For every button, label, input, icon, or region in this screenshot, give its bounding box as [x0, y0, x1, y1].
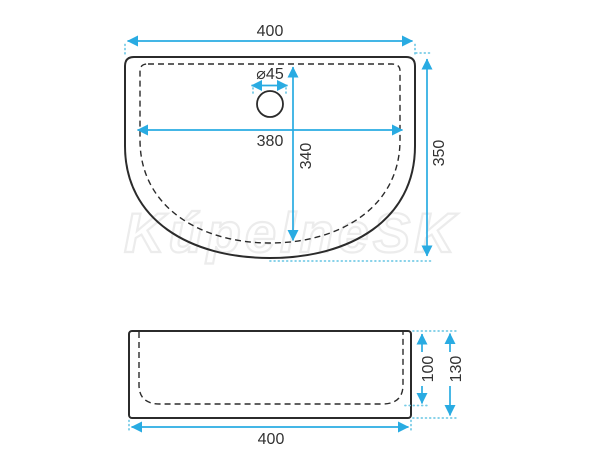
dim-label-overall-height: 130	[448, 356, 465, 383]
dim-label-overall-depth: 350	[431, 140, 448, 167]
side-view: 100 130 400	[129, 331, 465, 448]
dim-label-drain-diameter: ⌀45	[256, 66, 284, 83]
dim-label-top-overall-width: 400	[257, 23, 284, 40]
dim-label-inner-height: 100	[420, 356, 437, 383]
drain-hole	[257, 91, 283, 117]
side-view-inner-basin-dashed	[139, 332, 403, 404]
side-view-outer-outline	[129, 331, 411, 418]
dim-label-inner-width: 380	[257, 133, 284, 150]
dim-label-inner-depth: 340	[298, 143, 315, 170]
dim-label-side-overall-width: 400	[258, 431, 285, 448]
top-view: 400 ⌀45 380 340 350	[125, 23, 448, 261]
washbasin-dimension-drawing: 400 ⌀45 380 340 350	[0, 0, 600, 468]
top-view-outer-outline	[125, 57, 415, 258]
